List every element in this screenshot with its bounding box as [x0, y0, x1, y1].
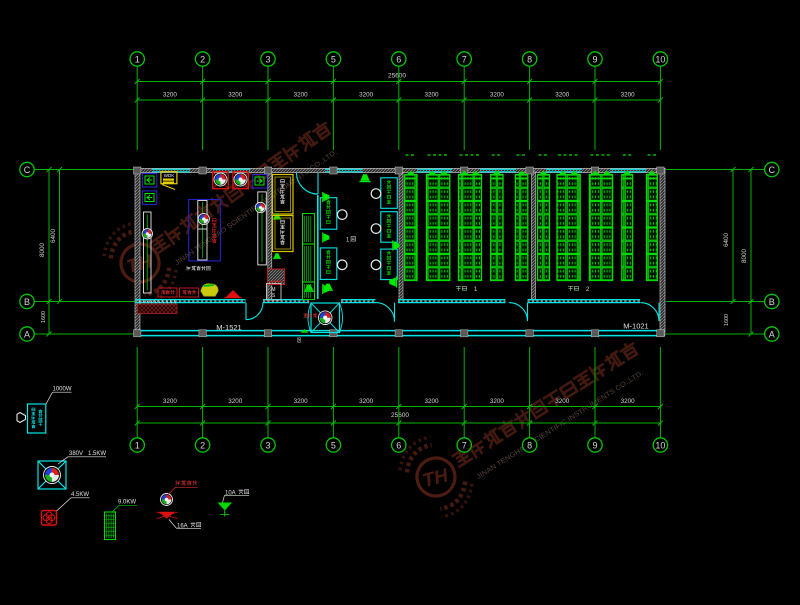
- svg-text:3200: 3200: [425, 92, 440, 99]
- svg-text:8: 8: [527, 54, 532, 64]
- svg-text:1600: 1600: [41, 311, 47, 323]
- svg-text:1600: 1600: [724, 314, 730, 326]
- svg-text:9: 9: [592, 440, 597, 450]
- svg-text:A: A: [24, 329, 30, 339]
- svg-text:8000: 8000: [742, 248, 748, 263]
- svg-text:3200: 3200: [228, 92, 243, 99]
- svg-text:3200: 3200: [621, 398, 636, 405]
- svg-text:6: 6: [396, 440, 401, 450]
- svg-text:9.0KW: 9.0KW: [118, 500, 136, 506]
- svg-text:M-1521: M-1521: [216, 323, 241, 332]
- svg-text:1000W: 1000W: [52, 387, 71, 393]
- svg-text:3200: 3200: [294, 92, 309, 99]
- svg-text:1: 1: [135, 440, 140, 450]
- svg-text:5: 5: [331, 54, 336, 64]
- svg-text:7: 7: [462, 440, 467, 450]
- svg-text:6: 6: [396, 54, 401, 64]
- svg-text:3: 3: [265, 54, 270, 64]
- svg-text:6400: 6400: [51, 228, 57, 243]
- svg-text:6400: 6400: [724, 232, 730, 247]
- svg-text:1: 1: [135, 54, 140, 64]
- svg-text:4.5KW: 4.5KW: [71, 492, 89, 498]
- svg-text:3200: 3200: [294, 398, 309, 405]
- svg-text:1.5KW: 1.5KW: [88, 451, 106, 457]
- svg-text:C: C: [24, 165, 31, 175]
- svg-text:3200: 3200: [621, 92, 636, 99]
- svg-text:3200: 3200: [490, 398, 505, 405]
- svg-text:3: 3: [265, 440, 270, 450]
- svg-text:380V: 380V: [69, 451, 83, 457]
- svg-text:5: 5: [331, 440, 336, 450]
- svg-text:3200: 3200: [425, 398, 440, 405]
- svg-text:7: 7: [462, 54, 467, 64]
- svg-text:A: A: [769, 329, 775, 339]
- svg-text:3200: 3200: [359, 92, 374, 99]
- svg-text:25600: 25600: [388, 73, 407, 80]
- svg-text:B: B: [24, 297, 30, 307]
- svg-text:2: 2: [200, 440, 205, 450]
- svg-text:10: 10: [655, 54, 665, 64]
- svg-text:3200: 3200: [359, 398, 374, 405]
- svg-text:B: B: [769, 297, 775, 307]
- svg-text:68: 68: [297, 337, 303, 343]
- svg-text:3200: 3200: [163, 92, 178, 99]
- svg-text:9: 9: [592, 54, 597, 64]
- svg-text:3200: 3200: [555, 92, 570, 99]
- svg-text:3200: 3200: [555, 398, 570, 405]
- svg-text:25600: 25600: [391, 412, 410, 419]
- svg-text:8000: 8000: [40, 242, 46, 257]
- svg-text:M-1021: M-1021: [623, 322, 648, 331]
- svg-text:C: C: [769, 165, 776, 175]
- svg-text:3200: 3200: [163, 398, 178, 405]
- svg-text:3200: 3200: [490, 92, 505, 99]
- svg-text:2: 2: [200, 54, 205, 64]
- svg-text:WDK: WDK: [164, 173, 175, 178]
- svg-text:3200: 3200: [228, 398, 243, 405]
- svg-text:10: 10: [655, 440, 665, 450]
- svg-text:8: 8: [527, 440, 532, 450]
